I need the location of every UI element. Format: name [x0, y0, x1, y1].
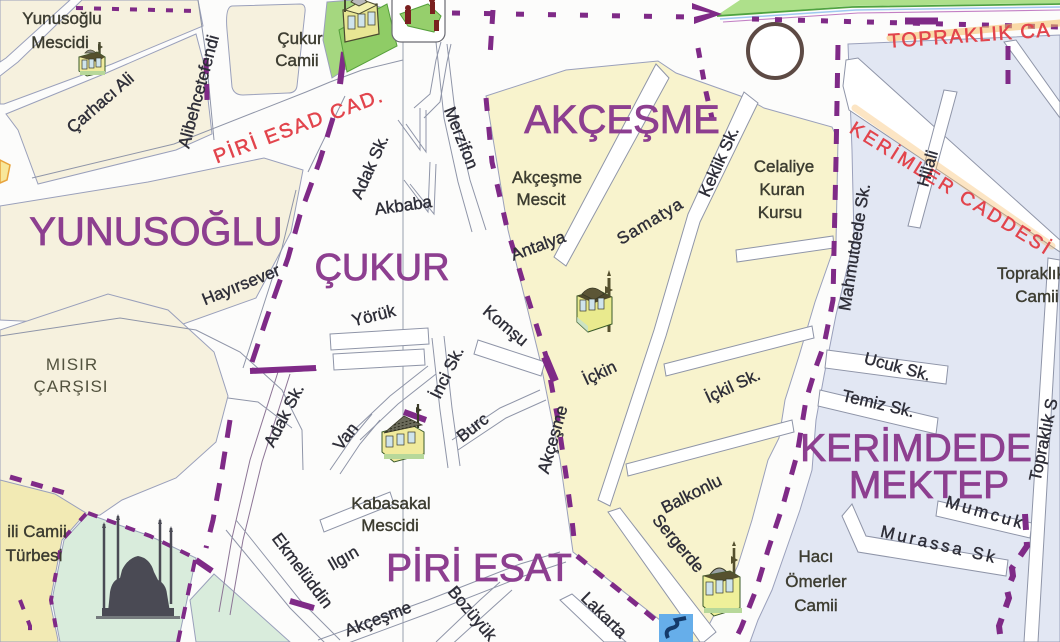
svg-text:Ömerler: Ömerler — [785, 572, 847, 591]
svg-text:Camii: Camii — [1015, 287, 1058, 306]
svg-text:Mescit: Mescit — [516, 190, 565, 209]
svg-text:Celaliye: Celaliye — [754, 157, 814, 176]
svg-text:Mescidi: Mescidi — [361, 516, 419, 535]
svg-text:Camii: Camii — [794, 596, 837, 615]
svg-text:ili Camii: ili Camii — [7, 522, 67, 541]
svg-text:Hacı: Hacı — [799, 547, 834, 566]
svg-text:Kursu: Kursu — [758, 203, 802, 222]
svg-text:Türbesi: Türbesi — [6, 546, 63, 565]
svg-text:ÇARŞISI: ÇARŞISI — [33, 377, 108, 396]
svg-text:PİRİ ESAT: PİRİ ESAT — [386, 547, 572, 590]
svg-text:Çukur: Çukur — [277, 29, 323, 48]
svg-text:MISIR: MISIR — [46, 355, 98, 374]
svg-text:YUNUSOĞLU: YUNUSOĞLU — [29, 209, 282, 254]
svg-text:Kabasakal: Kabasakal — [351, 494, 430, 513]
svg-text:Mescidi: Mescidi — [31, 33, 89, 52]
svg-text:Akçeşme: Akçeşme — [512, 168, 582, 187]
svg-text:Topraklık: Topraklık — [997, 264, 1060, 283]
svg-text:Kuran: Kuran — [759, 180, 804, 199]
svg-text:MEKTEP: MEKTEP — [849, 464, 1009, 507]
svg-text:Yunusoğlu: Yunusoğlu — [22, 9, 101, 28]
svg-text:Camii: Camii — [275, 51, 318, 70]
svg-text:AKÇEŞME: AKÇEŞME — [524, 98, 720, 142]
svg-text:ÇUKUR: ÇUKUR — [314, 247, 449, 289]
